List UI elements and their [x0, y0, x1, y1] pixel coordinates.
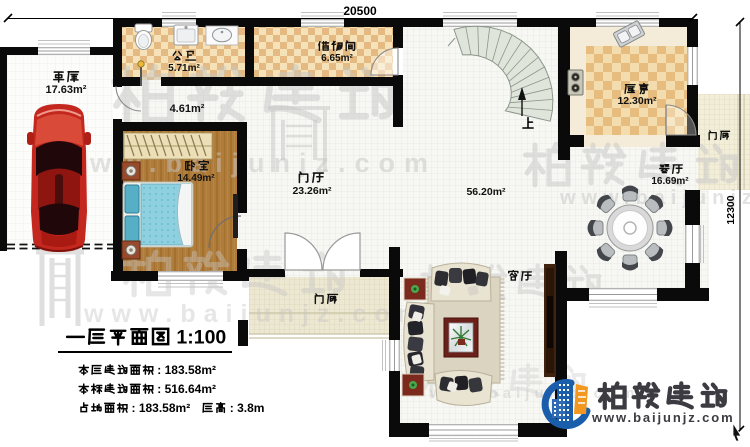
svg-text:: 183.58m²: : 183.58m² [132, 401, 191, 415]
svg-text:www.baijunjz.com: www.baijunjz.com [591, 410, 735, 425]
svg-text:12.30m²: 12.30m² [617, 95, 657, 107]
svg-text:20500: 20500 [343, 4, 377, 18]
svg-text:17.63m²: 17.63m² [46, 84, 87, 96]
svg-text:4.61m²: 4.61m² [170, 103, 205, 115]
svg-text:14.49m²: 14.49m² [177, 173, 215, 184]
svg-text:: 516.64m²: : 516.64m² [157, 382, 216, 396]
svg-text:6.65m²: 6.65m² [321, 53, 353, 64]
svg-text:: 3.8m: : 3.8m [230, 401, 265, 415]
svg-text:16.69m²: 16.69m² [651, 176, 689, 187]
svg-text:1:100: 1:100 [176, 327, 226, 349]
svg-text:: 183.58m²: : 183.58m² [157, 363, 216, 377]
svg-text:56.20m²: 56.20m² [466, 186, 506, 198]
svg-text:12300: 12300 [725, 195, 737, 224]
svg-text:www.baijunjz.com: www.baijunjz.com [83, 300, 428, 328]
svg-text:23.26m²: 23.26m² [292, 185, 332, 197]
svg-text:5.71m²: 5.71m² [168, 63, 200, 74]
